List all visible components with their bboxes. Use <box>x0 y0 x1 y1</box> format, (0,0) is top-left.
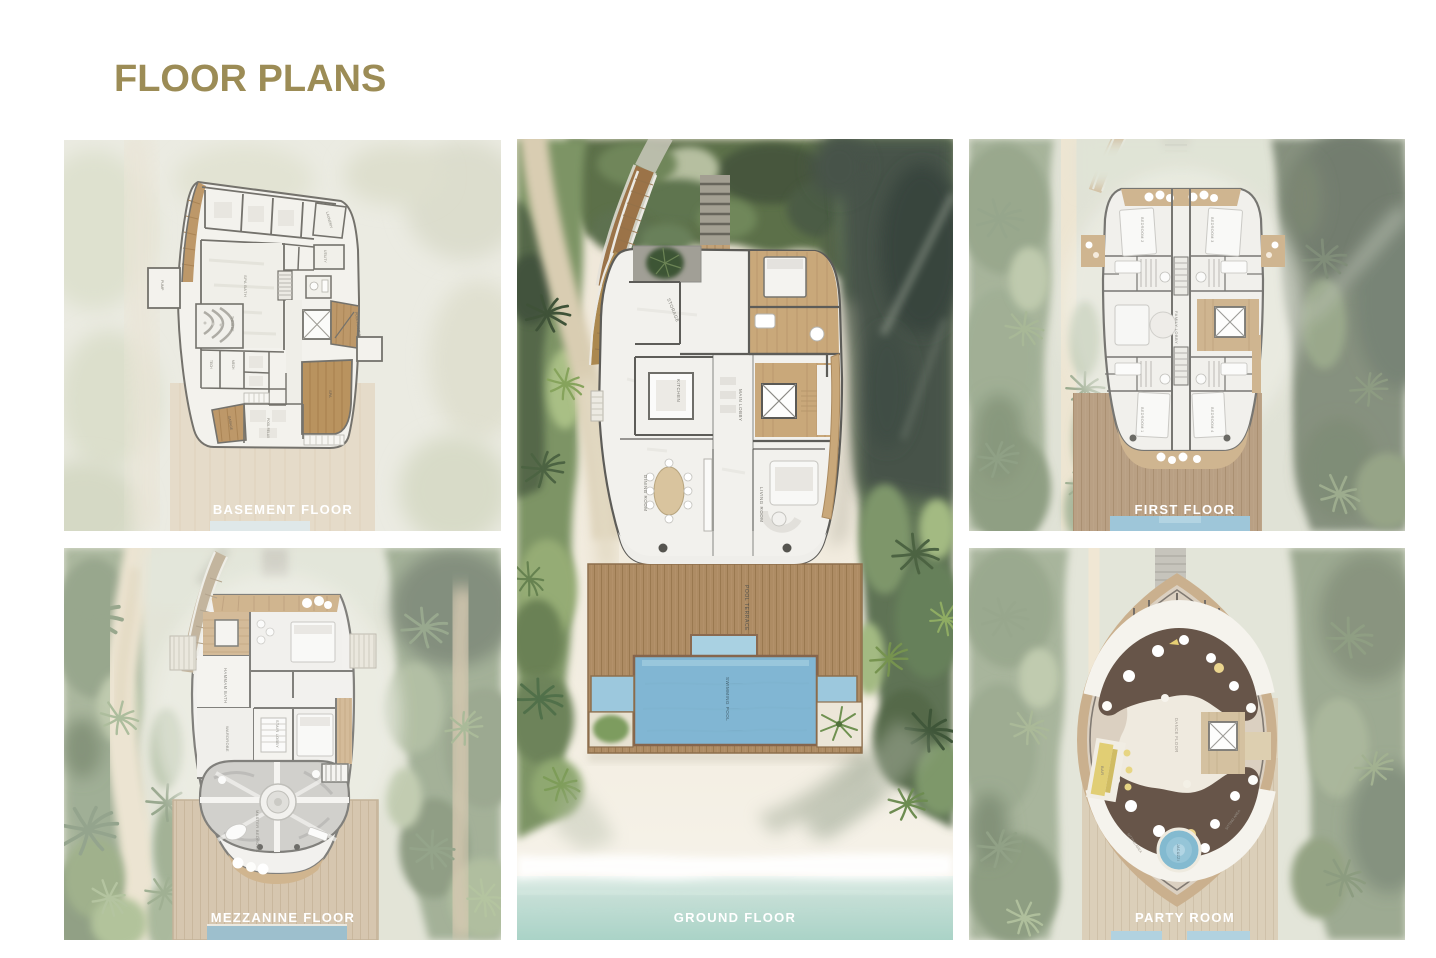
svg-text:SWIMMING POOL: SWIMMING POOL <box>725 677 730 721</box>
svg-text:MAIN LOBBY: MAIN LOBBY <box>738 389 743 422</box>
svg-text:PUMP: PUMP <box>160 280 164 291</box>
svg-text:POOL TERRACE: POOL TERRACE <box>743 585 749 631</box>
svg-text:TECH: TECH <box>209 360 213 369</box>
svg-text:LIVING ROOM: LIVING ROOM <box>759 487 764 523</box>
svg-text:UTILITY: UTILITY <box>323 250 327 263</box>
svg-text:SPA BATH: SPA BATH <box>243 275 248 297</box>
svg-text:SPA: SPA <box>328 390 333 398</box>
svg-text:POOL RELAX: POOL RELAX <box>266 418 270 439</box>
svg-text:MECH: MECH <box>231 360 235 370</box>
svg-text:THEATRE: THEATRE <box>230 316 234 332</box>
svg-text:DINING ROOM: DINING ROOM <box>643 475 648 512</box>
svg-text:KITCHEN: KITCHEN <box>676 379 681 402</box>
